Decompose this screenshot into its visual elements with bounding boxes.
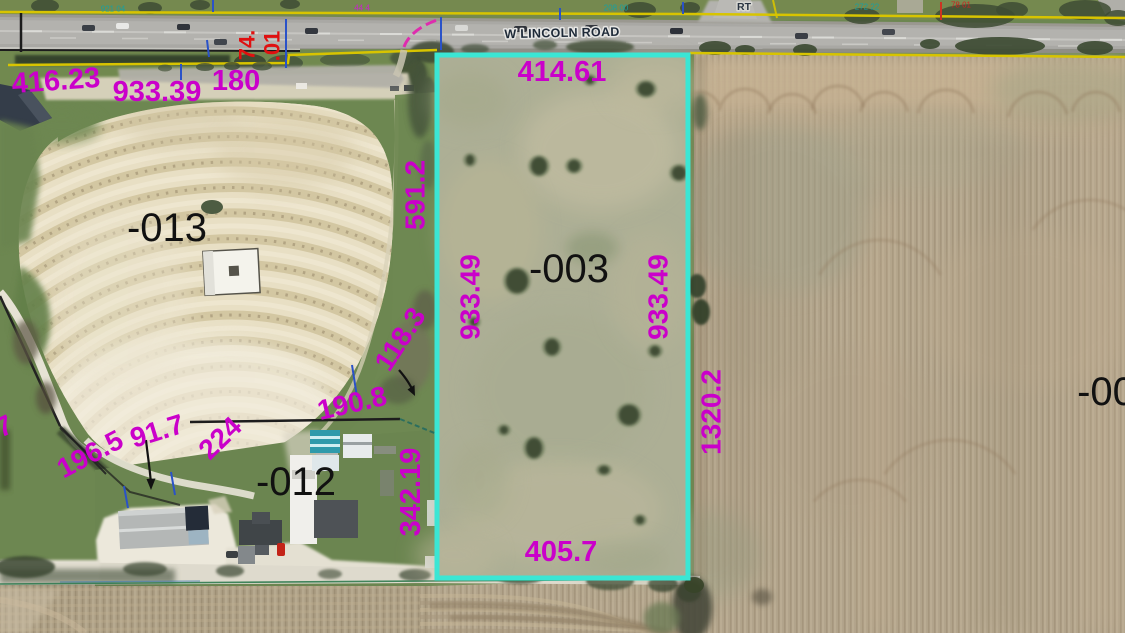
svg-text:-003: -003 <box>529 247 609 291</box>
svg-text:-013: -013 <box>127 206 207 250</box>
svg-text:342.19: 342.19 <box>395 448 427 537</box>
svg-text:180: 180 <box>212 65 260 97</box>
svg-text:933.39: 933.39 <box>113 76 202 108</box>
svg-text:933.49: 933.49 <box>643 254 674 340</box>
svg-text:RT: RT <box>737 1 752 13</box>
svg-text:1320.2: 1320.2 <box>696 369 727 455</box>
svg-text:78 01: 78 01 <box>951 1 972 10</box>
svg-text:921 04: 921 04 <box>101 5 126 14</box>
svg-text:272 22: 272 22 <box>855 3 880 12</box>
svg-text:414.61: 414.61 <box>518 56 607 88</box>
svg-text:-012: -012 <box>256 460 336 504</box>
svg-text:44 4: 44 4 <box>354 4 370 13</box>
svg-text:416.23: 416.23 <box>11 62 102 100</box>
svg-text:74.: 74. <box>235 30 260 61</box>
svg-text:-00: -00 <box>1077 370 1125 414</box>
svg-text:208 00: 208 00 <box>604 4 629 13</box>
svg-text:933.49: 933.49 <box>455 254 486 340</box>
svg-text:W LINCOLN ROAD: W LINCOLN ROAD <box>504 25 620 41</box>
svg-text:405.7: 405.7 <box>525 536 598 568</box>
svg-text:.01: .01 <box>260 31 285 62</box>
svg-text:591.2: 591.2 <box>400 160 431 230</box>
